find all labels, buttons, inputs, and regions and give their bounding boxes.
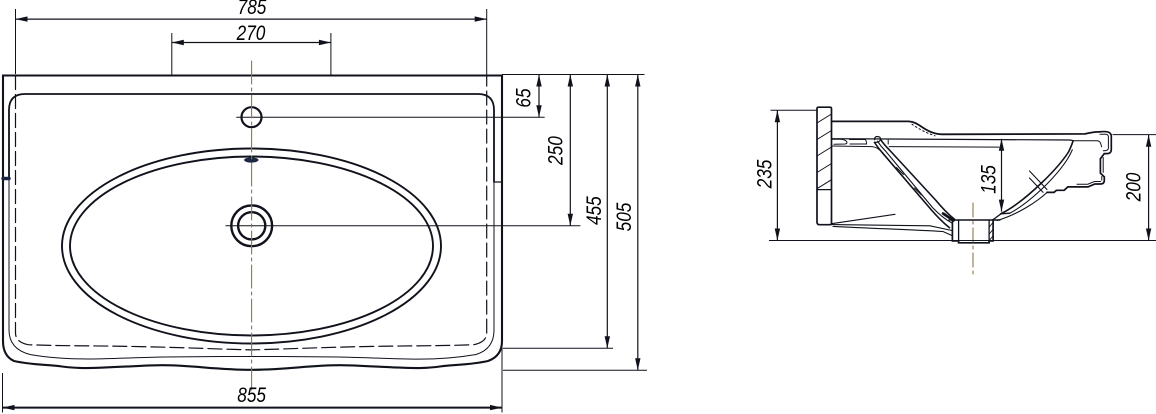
svg-text:135: 135 bbox=[978, 165, 1001, 194]
svg-text:200: 200 bbox=[1123, 172, 1146, 202]
svg-text:455: 455 bbox=[584, 196, 607, 225]
svg-text:505: 505 bbox=[613, 202, 636, 231]
svg-text:270: 270 bbox=[236, 22, 266, 45]
svg-text:855: 855 bbox=[237, 384, 266, 407]
svg-text:65: 65 bbox=[513, 88, 536, 107]
svg-text:250: 250 bbox=[545, 136, 568, 166]
svg-text:235: 235 bbox=[754, 159, 777, 189]
svg-text:785: 785 bbox=[238, 0, 267, 19]
